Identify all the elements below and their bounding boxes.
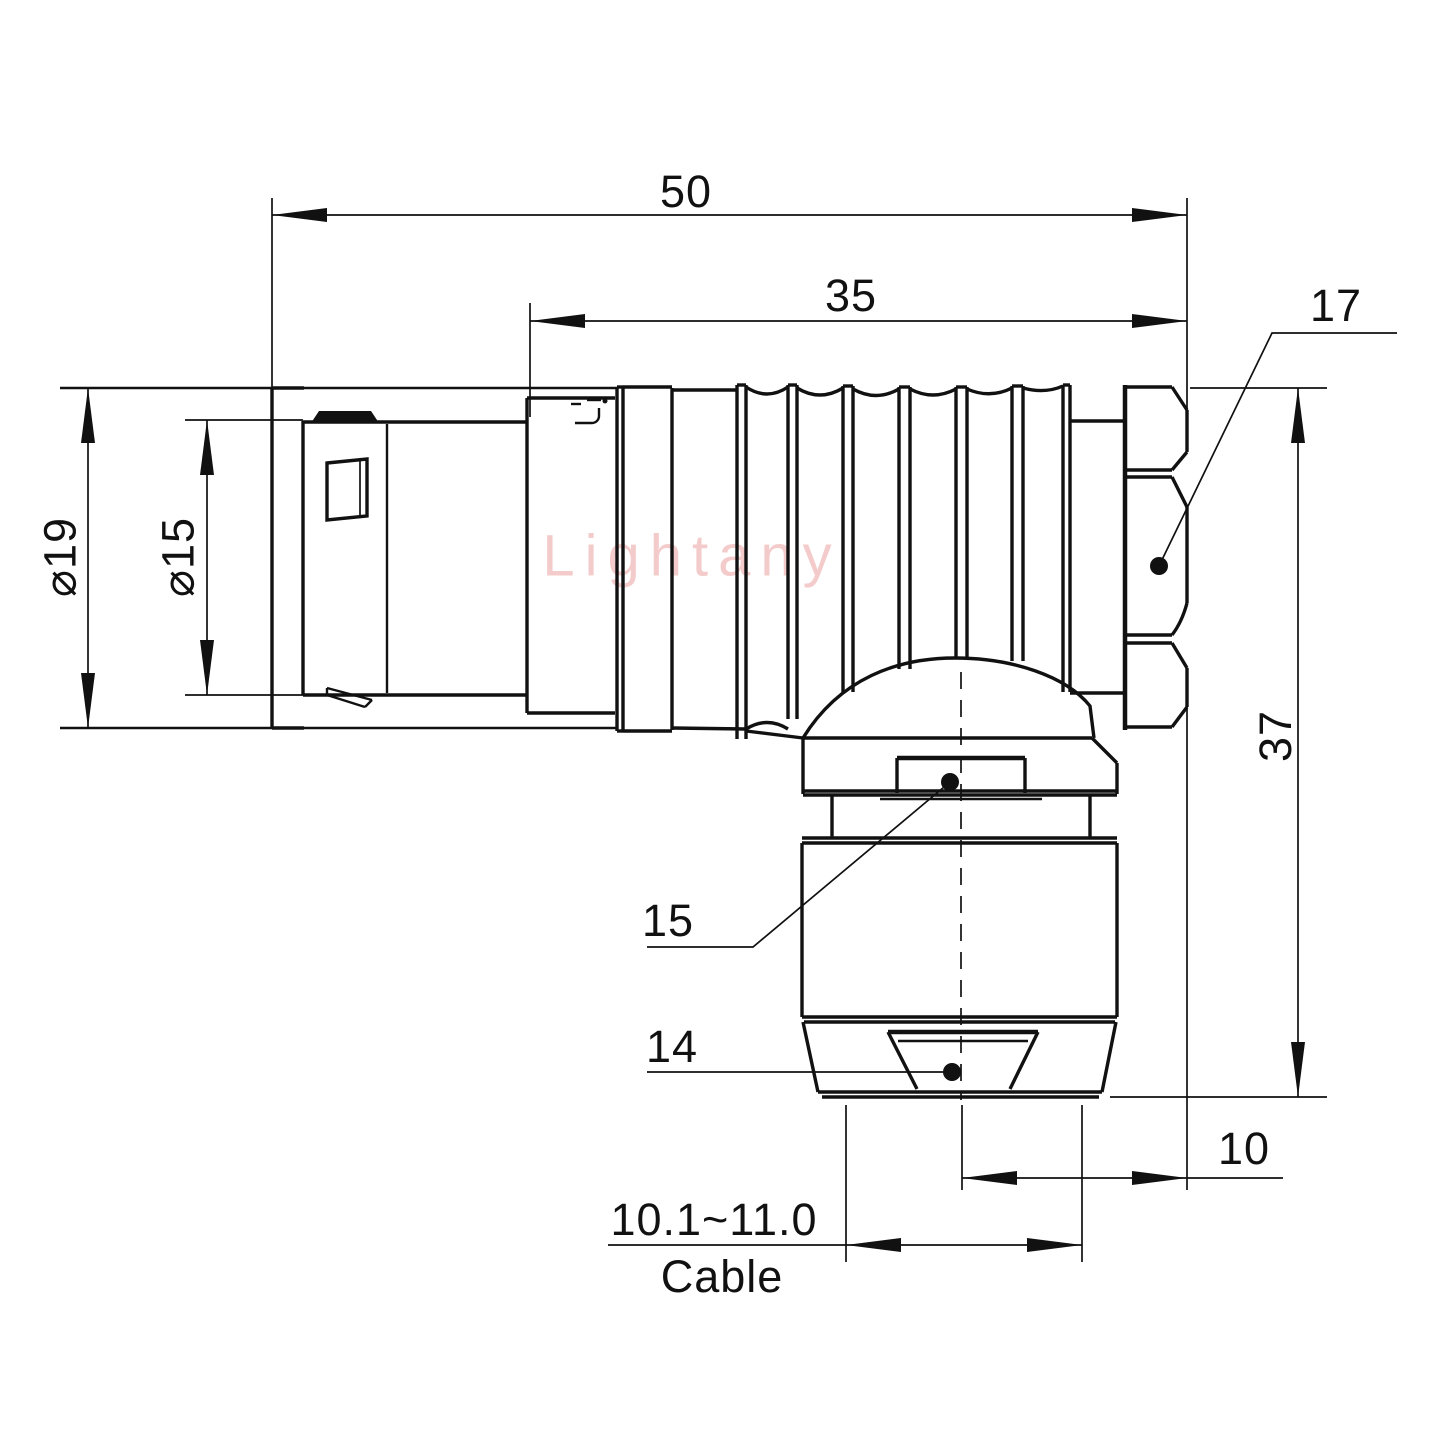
elbow-dome bbox=[803, 658, 1094, 738]
dim-hex-flats-label: 17 bbox=[1310, 280, 1362, 332]
hex-nut bbox=[1125, 385, 1187, 730]
dim-gland-flat-label: 15 bbox=[642, 895, 694, 947]
latch-window bbox=[327, 459, 367, 520]
technical-drawing-canvas: Lightany bbox=[0, 0, 1440, 1440]
dim-cable-range-label: 10.1~11.0 bbox=[610, 1194, 817, 1246]
elbow-down-tube bbox=[802, 658, 1117, 1100]
keying-wedge bbox=[327, 688, 372, 707]
dim-total-height-label: 37 bbox=[1250, 710, 1302, 762]
cable-word-label: Cable bbox=[661, 1251, 784, 1303]
engraved-logo-marks bbox=[571, 399, 608, 424]
dim-outer-diameter-label: ⌀19 bbox=[34, 517, 87, 597]
dim-offset-label: 10 bbox=[1218, 1123, 1270, 1175]
dim-nose-flat-label: 14 bbox=[646, 1021, 698, 1073]
dimension-arrows bbox=[81, 208, 1305, 1252]
latch-bump bbox=[311, 411, 379, 423]
connector-body bbox=[272, 387, 803, 738]
dim-body-length-label: 35 bbox=[825, 270, 877, 322]
dim-total-length-label: 50 bbox=[660, 166, 712, 218]
dim-inner-diameter-label: ⌀15 bbox=[152, 517, 205, 597]
